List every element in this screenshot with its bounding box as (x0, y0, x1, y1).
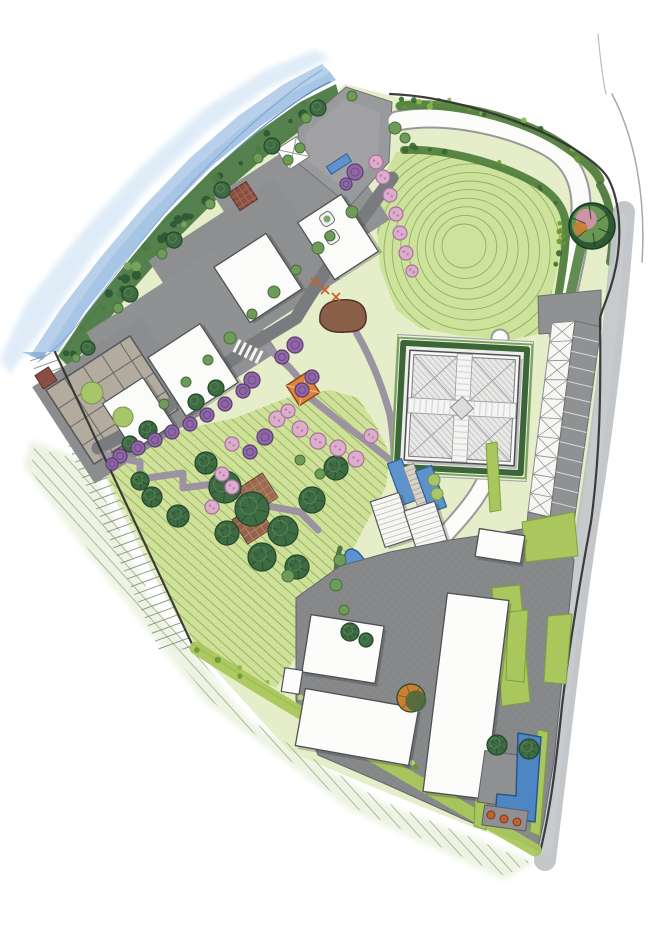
shrub-icon (301, 113, 311, 123)
pink-flowering-tree-icon (376, 170, 390, 184)
shrub (291, 265, 301, 275)
lime-tree-icon (113, 407, 133, 427)
purple-flowering-tree (148, 433, 162, 447)
hedge-top-speckle-dot (416, 99, 422, 105)
purple-flowering-tree (236, 384, 250, 398)
pink-flowering-tree-icon (292, 421, 308, 437)
pink-flowering-tree-icon (310, 433, 326, 449)
tree-texture (300, 499, 308, 500)
purple-flowering-tree (295, 383, 309, 397)
shrub (400, 133, 410, 143)
shrub-icon (347, 91, 357, 101)
pink-flowering-tree (407, 253, 409, 255)
pink-flowering-tree (403, 250, 405, 252)
pink-flowering-tree (406, 265, 418, 277)
hedge-top-speckle-dot (403, 105, 407, 109)
purple-flowering-tree-icon (257, 429, 273, 445)
shrub-icon (295, 455, 305, 465)
site-plan-drawing (0, 0, 658, 931)
shrub (224, 332, 236, 344)
boundary-hedge-speckle-dot (412, 764, 418, 770)
veg-speckle-dot (288, 119, 292, 123)
pink-flowering-tree (401, 233, 403, 235)
dark-canopy-tree-icon (487, 735, 507, 755)
shrub (181, 377, 191, 387)
shrub (157, 249, 167, 259)
hedge-lawn-speckle-dot (538, 185, 542, 189)
hedge-lawn-speckle-dot (556, 239, 562, 245)
pink-flowering-tree (334, 445, 336, 447)
shrub (203, 355, 213, 365)
pink-flowering-tree (273, 416, 275, 418)
shrub (72, 354, 80, 362)
tree-texture (139, 473, 140, 479)
pink-flowering-tree (296, 426, 298, 428)
shrub-icon (291, 265, 301, 275)
lime-tree (428, 474, 440, 486)
dark-canopy-tree-icon (248, 543, 276, 571)
pink-flowering-tree (368, 433, 370, 435)
pink-flowering-tree (391, 195, 393, 197)
hedge-lawn-speckle-dot (556, 229, 562, 235)
shrub-icon (205, 199, 215, 209)
shrub-icon (295, 143, 305, 153)
hedge-lawn-speckle-dot (413, 145, 418, 150)
shrub (339, 605, 349, 615)
hedge-lawn-speckle-dot (554, 263, 558, 267)
pink-flowering-tree (399, 246, 413, 260)
pink-flowering-tree (376, 170, 390, 184)
pink-flowering-tree (412, 271, 414, 273)
shrub (334, 554, 346, 566)
spa-tub-1-water (324, 216, 331, 223)
pink-flowering-tree-icon (225, 437, 239, 451)
shrub-icon (389, 122, 401, 134)
shrub-icon (157, 249, 167, 259)
lime-tree-icon (428, 474, 440, 486)
purple-flowering-tree-icon (200, 408, 214, 422)
purple-flowering-tree (131, 441, 145, 455)
dark-canopy-tree-icon (341, 623, 359, 641)
shrub (301, 113, 311, 123)
lime-tree (431, 488, 443, 500)
dark-canopy-tree-icon (131, 472, 149, 490)
purple-flowering-tree (275, 350, 289, 364)
pink-flowering-tree (225, 480, 239, 494)
shrub (389, 122, 401, 134)
pink-flowering-tree (357, 459, 359, 461)
hedge-lawn-speckle-dot (502, 164, 506, 168)
dark-canopy-tree-icon (167, 505, 189, 527)
shrub (312, 242, 324, 254)
boundary-hedge-speckle-dot (298, 694, 304, 700)
hedge-top-speckle-dot (430, 101, 433, 104)
dark-canopy-tree-icon (299, 487, 325, 513)
shrub-icon (181, 377, 191, 387)
purple-flowering-tree (243, 445, 257, 459)
dark-canopy-tree-icon (166, 232, 182, 248)
pink-flowering-tree (223, 474, 225, 476)
villa-d (302, 615, 384, 684)
pink-flowering-tree (380, 174, 382, 176)
pink-flowering-tree-icon (369, 155, 383, 169)
purple-flowering-tree-icon (305, 370, 319, 384)
dark-canopy-tree-icon (195, 452, 217, 474)
shrub (330, 579, 342, 591)
tree-texture (151, 500, 152, 506)
shrub-icon (346, 206, 358, 218)
shrub-icon (400, 133, 410, 143)
shrub (295, 455, 305, 465)
boundary-hedge-speckle-dot (266, 680, 270, 684)
pink-flowering-tree (281, 404, 295, 418)
purple-flowering-tree (183, 417, 197, 431)
shrub-icon (334, 554, 346, 566)
veg-speckle-dot (181, 222, 187, 228)
veg-speckle-dot (157, 234, 166, 243)
veg-speckle-dot (121, 274, 130, 283)
shrub-icon (247, 309, 257, 319)
pink-flowering-tree (278, 419, 280, 421)
shrub-icon (312, 242, 324, 254)
feature-corner-tree-icon (569, 203, 615, 249)
hedge-lawn-speckle-dot (554, 201, 557, 204)
veg-speckle-dot (63, 350, 69, 356)
dark-canopy-tree (248, 543, 276, 571)
pink-flowering-tree (292, 421, 308, 437)
pink-flowering-tree-icon (399, 246, 413, 260)
pink-flowering-tree (301, 429, 303, 431)
shrub (282, 570, 294, 582)
pink-flowering-tree (393, 226, 407, 240)
veg-speckle-dot (212, 174, 221, 183)
purple-flowering-tree (305, 370, 319, 384)
pink-flowering-tree (205, 500, 219, 514)
pink-flowering-tree-icon (406, 265, 418, 277)
pink-flowering-tree (348, 451, 364, 467)
dark-canopy-tree-icon (142, 487, 162, 507)
shrub (268, 286, 280, 298)
dark-canopy-tree-icon (122, 286, 138, 302)
purple-flowering-tree-icon (287, 337, 303, 353)
dark-canopy-tree-icon (310, 100, 326, 116)
shrub (295, 143, 305, 153)
villa-f (281, 668, 303, 695)
pink-flowering-tree-icon (383, 188, 397, 202)
boundary-hedge-speckle-dot (215, 657, 222, 664)
dark-canopy-tree-icon (208, 380, 224, 396)
pink-flowering-tree (369, 155, 383, 169)
pink-flowering-tree (352, 456, 354, 458)
hedge-lawn-speckle-dot (557, 221, 562, 226)
pink-flowering-tree (233, 444, 235, 446)
lime-tree-icon (81, 382, 103, 404)
pink-flowering-tree (377, 162, 379, 164)
pink-flowering-tree-icon (348, 451, 364, 467)
pink-flowering-tree (409, 269, 411, 271)
pink-flowering-tree (314, 438, 316, 440)
veg-speckle-dot (187, 213, 193, 219)
hedge-lawn-speckle-dot (428, 148, 432, 152)
pink-flowering-tree (397, 214, 399, 216)
hedge-top-speckle-dot (574, 155, 580, 161)
shrub-icon (72, 354, 80, 362)
boundary-hedge-speckle-dot (194, 647, 200, 653)
shrub-icon (325, 231, 335, 241)
dark-canopy-tree-icon (215, 521, 239, 545)
boundary-hedge-speckle-dot (237, 665, 242, 670)
shrub-icon (315, 469, 325, 479)
pink-flowering-tree (229, 484, 231, 486)
outer-curb-stub (598, 34, 606, 94)
purple-flowering-tree-icon (148, 433, 162, 447)
veg-speckle-dot (263, 130, 270, 137)
hedge-top-speckle-dot (482, 112, 487, 117)
pink-flowering-tree (393, 211, 395, 213)
shrub (205, 199, 215, 209)
pink-flowering-tree (225, 437, 239, 451)
veg-speckle-dot (124, 262, 132, 270)
purple-flowering-tree (287, 337, 303, 353)
dark-canopy-tree (268, 516, 298, 546)
pink-flowering-tree (397, 230, 399, 232)
dark-canopy-tree-icon (264, 138, 280, 154)
shrub (347, 91, 357, 101)
pink-flowering-tree (213, 507, 215, 509)
pink-flowering-tree (310, 433, 326, 449)
pink-flowering-tree-icon (225, 480, 239, 494)
purple-flowering-tree (257, 429, 273, 445)
pink-flowering-tree (372, 436, 374, 438)
dark-canopy-tree-icon (81, 341, 95, 355)
hedge-top-speckle-dot (411, 97, 417, 103)
pink-flowering-tree-icon (330, 440, 346, 456)
purple-flowering-tree (347, 164, 363, 180)
veg-speckle-dot (301, 101, 306, 106)
purple-flowering-tree-icon (295, 383, 309, 397)
lime-tree-icon (431, 488, 443, 500)
veg-speckle-dot (105, 289, 113, 297)
dark-canopy-tree-icon (268, 516, 298, 546)
veg-speckle-dot (238, 161, 243, 166)
purple-flowering-tree-icon (131, 441, 145, 455)
purple-flowering-tree-icon (183, 417, 197, 431)
pink-flowering-tree (219, 471, 221, 473)
shrub (283, 155, 293, 165)
shrub-icon (282, 570, 294, 582)
dark-canopy-tree-icon (324, 456, 348, 480)
boundary-hedge-speckle-dot (237, 674, 242, 679)
purple-flowering-tree-icon (243, 445, 257, 459)
dark-canopy-tree-icon (188, 394, 204, 410)
field-hatch-line (0, 633, 261, 931)
tree-texture (316, 500, 324, 501)
pink-flowering-tree (330, 440, 346, 456)
hedge-lawn-speckle-dot (560, 234, 565, 239)
purple-flowering-tree (200, 408, 214, 422)
timber-pond (320, 300, 366, 332)
shrub-icon (224, 332, 236, 344)
dark-canopy-tree-icon (359, 633, 373, 647)
purple-flowering-tree-icon (218, 397, 232, 411)
pink-flowering-tree-icon (281, 404, 295, 418)
shrub (113, 303, 123, 313)
purple-flowering-tree (165, 425, 179, 439)
dark-canopy-tree-icon (235, 492, 269, 526)
lounger-2 (500, 815, 508, 823)
pink-flowering-tree (389, 207, 403, 221)
tree-texture (151, 430, 157, 431)
tree-texture (140, 429, 146, 430)
hedge-lawn-speckle-dot (402, 147, 408, 153)
shrub-icon (113, 303, 123, 313)
veg-speckle-dot (101, 306, 106, 311)
purple-flowering-tree-icon (347, 164, 363, 180)
shrub (315, 469, 325, 479)
shrub-icon (330, 579, 342, 591)
lounger-3 (513, 818, 521, 826)
pink-flowering-tree (215, 467, 229, 481)
pink-flowering-tree (339, 448, 341, 450)
shrub (159, 399, 169, 409)
shrub-icon (159, 399, 169, 409)
lounger-1 (487, 811, 495, 819)
veg-speckle-dot (255, 146, 261, 152)
shrub-icon (253, 153, 263, 163)
pink-flowering-tree (384, 177, 386, 179)
veg-speckle-dot (131, 262, 141, 272)
hedge-lawn-speckle-dot (497, 160, 501, 164)
purple-flowering-tree-icon (340, 178, 352, 190)
pink-flowering-tree (285, 408, 287, 410)
shrub (325, 231, 335, 241)
purple-flowering-tree (106, 458, 118, 470)
purple-flowering-tree (340, 178, 352, 190)
pink-flowering-tree (229, 441, 231, 443)
pink-flowering-tree (364, 429, 378, 443)
shrub-icon (268, 286, 280, 298)
dark-canopy-tree (299, 487, 325, 513)
pink-flowering-tree (289, 411, 291, 413)
pink-flowering-tree (373, 159, 375, 161)
pink-flowering-tree (233, 487, 235, 489)
pink-flowering-tree-icon (205, 500, 219, 514)
shrub-icon (203, 355, 213, 365)
hedge-top-speckle-dot (427, 103, 433, 109)
shrub (253, 153, 263, 163)
hedge-top-speckle-dot (399, 97, 404, 102)
dark-canopy-tree-icon (214, 182, 230, 198)
shrub-icon (283, 155, 293, 165)
tree-texture (140, 484, 141, 490)
veg-speckle-dot (174, 215, 183, 224)
pink-flowering-tree-icon (215, 467, 229, 481)
dark-canopy-tree (235, 492, 269, 526)
hedge-lawn-speckle-dot (556, 250, 562, 256)
veg-speckle-dot (132, 271, 141, 280)
shrub (247, 309, 257, 319)
dark-canopy-tree-icon (519, 739, 539, 759)
pink-flowering-tree-icon (364, 429, 378, 443)
pink-flowering-tree (387, 192, 389, 194)
purple-flowering-tree-icon (236, 384, 250, 398)
hedge-lawn-speckle-dot (442, 149, 448, 155)
veg-speckle-dot (79, 326, 86, 333)
veg-speckle-dot (141, 242, 151, 252)
purple-flowering-tree-icon (275, 350, 289, 364)
site-plan-page (0, 0, 658, 931)
site-plan-art (0, 34, 658, 931)
lime-tree (81, 382, 103, 404)
purple-flowering-tree-icon (165, 425, 179, 439)
hedge-lawn-speckle-dot (563, 242, 566, 245)
pink-flowering-tree-icon (389, 207, 403, 221)
pink-flowering-tree (383, 188, 397, 202)
shrub-icon (339, 605, 349, 615)
pink-flowering-tree-icon (393, 226, 407, 240)
pink-flowering-tree (319, 441, 321, 443)
lime-tree (113, 407, 133, 427)
villa-f (281, 668, 303, 695)
shrub (346, 206, 358, 218)
purple-flowering-tree (218, 397, 232, 411)
pink-flowering-tree (209, 504, 211, 506)
purple-flowering-tree-icon (106, 458, 118, 470)
